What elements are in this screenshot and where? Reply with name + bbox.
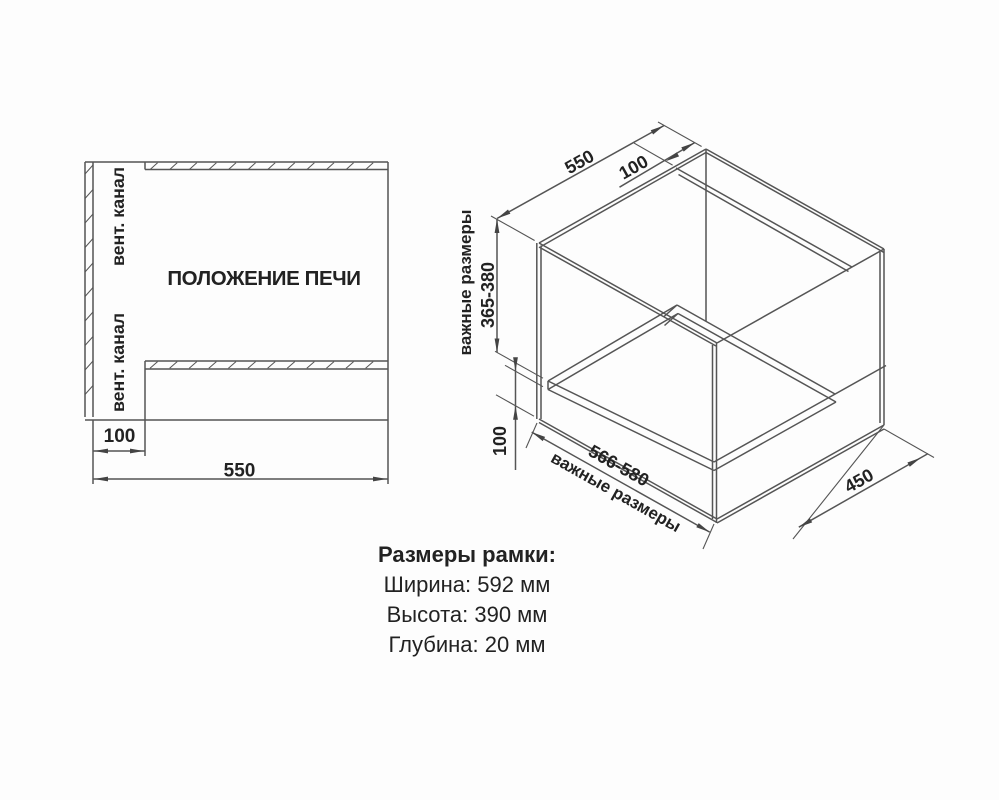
svg-text:Ширина: 592 мм: Ширина: 592 мм [384, 572, 551, 597]
svg-text:Размеры рамки:: Размеры рамки: [378, 542, 556, 567]
svg-text:важные размеры: важные размеры [456, 210, 475, 356]
svg-text:100: 100 [104, 426, 136, 447]
svg-text:450: 450 [841, 465, 877, 497]
svg-text:Высота: 390 мм: Высота: 390 мм [387, 602, 548, 627]
svg-text:550: 550 [561, 146, 597, 178]
svg-text:100: 100 [490, 426, 510, 456]
svg-text:365-380: 365-380 [478, 262, 498, 328]
svg-text:ПОЛОЖЕНИЕ ПЕЧИ: ПОЛОЖЕНИЕ ПЕЧИ [167, 267, 360, 290]
svg-text:550: 550 [224, 461, 256, 482]
svg-text:100: 100 [616, 151, 652, 183]
svg-text:Глубина: 20 мм: Глубина: 20 мм [388, 632, 545, 657]
svg-text:вент. канал: вент. канал [108, 167, 128, 266]
svg-text:вент. канал: вент. канал [108, 313, 128, 412]
